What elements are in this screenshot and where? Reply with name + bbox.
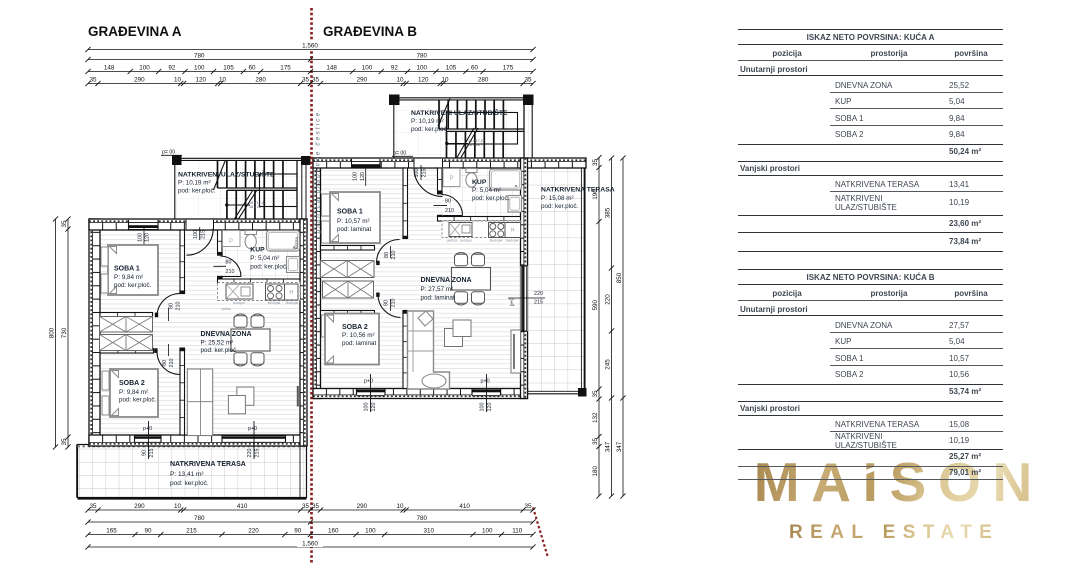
svg-text:100: 100: [480, 403, 486, 412]
svg-text:10: 10: [174, 503, 182, 510]
svg-text:100: 100: [139, 64, 150, 71]
svg-text:120: 120: [145, 233, 151, 242]
svg-text:780: 780: [194, 515, 205, 522]
svg-text:410: 410: [459, 503, 470, 510]
svg-text:štednjak: štednjak: [268, 301, 281, 305]
svg-text:245: 245: [605, 359, 612, 370]
svg-text:215: 215: [186, 527, 197, 534]
svg-text:190: 190: [592, 189, 599, 200]
svg-text:210: 210: [226, 269, 235, 275]
svg-text:p+0: p+0: [481, 379, 490, 385]
svg-text:110: 110: [512, 527, 523, 534]
svg-text:92: 92: [391, 64, 399, 71]
svg-text:105: 105: [446, 64, 457, 71]
svg-text:35: 35: [302, 76, 310, 83]
svg-text:pod: laminat: pod: laminat: [421, 295, 456, 302]
svg-text:35: 35: [312, 76, 320, 83]
svg-text:sudoper: sudoper: [460, 239, 473, 243]
svg-text:H: H: [511, 228, 515, 234]
svg-text:štednjak: štednjak: [490, 239, 503, 243]
svg-text:60: 60: [248, 64, 256, 71]
svg-text:780: 780: [416, 52, 427, 59]
svg-text:35: 35: [592, 390, 599, 398]
svg-text:35: 35: [61, 220, 68, 228]
svg-text:210: 210: [169, 359, 175, 368]
svg-text:215: 215: [149, 449, 155, 458]
svg-text:pod: ker.ploč.: pod: ker.ploč.: [178, 188, 216, 195]
svg-text:p+0: p+0: [248, 426, 257, 432]
svg-text:310: 310: [424, 527, 435, 534]
svg-text:35: 35: [89, 503, 97, 510]
svg-text:DNEVNA ZONA: DNEVNA ZONA: [421, 277, 472, 284]
svg-text:P: 10,19 m²: P: 10,19 m²: [411, 118, 444, 125]
svg-text:215: 215: [422, 169, 428, 178]
svg-text:H: H: [289, 290, 293, 296]
svg-text:NATKRIVENI ULAZ/STUBIŠTE: NATKRIVENI ULAZ/STUBIŠTE: [411, 108, 508, 117]
svg-text:730: 730: [61, 327, 68, 338]
svg-text:18 x 28: 18 x 28: [468, 143, 480, 147]
svg-text:P: 25,52 m²: P: 25,52 m²: [201, 340, 234, 347]
svg-text:347: 347: [616, 441, 623, 452]
svg-text:p= 00: p= 00: [393, 151, 406, 157]
svg-text:P: 10,56 m²: P: 10,56 m²: [342, 332, 375, 339]
svg-text:290: 290: [357, 503, 368, 510]
svg-text:148: 148: [104, 64, 115, 71]
svg-text:210: 210: [176, 302, 182, 311]
svg-text:35: 35: [312, 503, 320, 510]
svg-text:90: 90: [142, 450, 148, 456]
svg-text:80: 80: [445, 199, 451, 205]
svg-text:P: 13,41 m²: P: 13,41 m²: [170, 471, 204, 478]
svg-text:pod: ker.ploč: pod: ker.ploč: [411, 126, 447, 133]
svg-text:80: 80: [169, 303, 175, 309]
svg-text:100: 100: [362, 64, 373, 71]
svg-text:80: 80: [226, 260, 232, 266]
svg-text:pod: laminat: pod: laminat: [342, 340, 377, 347]
svg-text:210: 210: [445, 208, 454, 214]
svg-text:10: 10: [396, 503, 404, 510]
svg-text:P: 27,57 m²: P: 27,57 m²: [421, 286, 454, 293]
svg-text:347: 347: [605, 441, 612, 452]
svg-text:SOBA 2: SOBA 2: [119, 380, 145, 387]
svg-text:35: 35: [592, 438, 599, 446]
svg-text:100: 100: [416, 64, 427, 71]
svg-text:35: 35: [89, 76, 97, 83]
svg-text:210: 210: [391, 299, 397, 308]
svg-text:35: 35: [525, 503, 533, 510]
svg-text:132: 132: [592, 412, 599, 423]
svg-text:pod: ker.ploč.: pod: ker.ploč.: [250, 264, 288, 271]
svg-text:p+0: p+0: [143, 426, 152, 432]
svg-text:160: 160: [328, 527, 339, 534]
svg-text:P: 15,08 m²: P: 15,08 m²: [541, 195, 574, 202]
svg-text:P: P: [229, 239, 233, 245]
svg-text:p+0: p+0: [364, 379, 373, 385]
svg-text:P: 5,04 m²: P: 5,04 m²: [250, 255, 279, 262]
svg-text:p= 00: p= 00: [162, 150, 175, 156]
svg-text:175: 175: [280, 64, 291, 71]
svg-text:10: 10: [219, 76, 227, 83]
svg-text:120: 120: [487, 403, 493, 412]
svg-text:290: 290: [357, 76, 368, 83]
svg-text:1,560: 1,560: [302, 540, 318, 547]
svg-text:290: 290: [134, 503, 145, 510]
svg-text:100: 100: [364, 403, 370, 412]
svg-text:pod: ker.ploč.: pod: ker.ploč.: [472, 195, 510, 202]
svg-text:120: 120: [360, 172, 366, 181]
svg-text:P: 9,84 m²: P: 9,84 m²: [119, 389, 148, 396]
svg-text:pod: laminat: pod: laminat: [337, 226, 372, 233]
svg-text:385: 385: [605, 207, 612, 218]
svg-text:100: 100: [353, 172, 359, 181]
svg-text:P: P: [449, 176, 453, 182]
svg-text:10: 10: [174, 76, 182, 83]
svg-text:P: 10,57 m²: P: 10,57 m²: [337, 218, 370, 225]
svg-text:sudoper: sudoper: [233, 301, 246, 305]
svg-text:215: 215: [534, 300, 543, 306]
svg-text:35: 35: [592, 159, 599, 167]
svg-text:120: 120: [371, 403, 377, 412]
svg-text:215: 215: [201, 230, 207, 239]
svg-text:220: 220: [605, 294, 612, 305]
svg-text:80: 80: [384, 300, 390, 306]
svg-text:KUP: KUP: [250, 247, 265, 254]
svg-text:SOBA 1: SOBA 1: [114, 266, 140, 273]
svg-text:35: 35: [525, 76, 533, 83]
svg-text:p+0: p+0: [510, 298, 516, 307]
svg-text:175: 175: [503, 64, 514, 71]
svg-text:800: 800: [49, 327, 56, 338]
svg-text:hladnjak: hladnjak: [506, 239, 519, 243]
svg-text:pod: ker.ploč.: pod: ker.ploč.: [541, 203, 579, 210]
svg-text:90: 90: [144, 527, 152, 534]
svg-text:220: 220: [247, 449, 253, 458]
svg-text:hladnjak: hladnjak: [286, 301, 299, 305]
svg-text:GRAĐEVINA B: GRAĐEVINA B: [323, 24, 417, 39]
svg-text:80: 80: [162, 360, 168, 366]
svg-text:1,560: 1,560: [302, 43, 318, 50]
svg-text:pod: ker.ploč.: pod: ker.ploč.: [170, 480, 209, 487]
svg-text:10: 10: [396, 76, 404, 83]
svg-text:100: 100: [193, 230, 199, 239]
svg-text:10: 10: [441, 76, 449, 83]
svg-text:120: 120: [195, 76, 206, 83]
svg-text:perilica: perilica: [447, 239, 458, 243]
svg-text:P: 9,84 m²: P: 9,84 m²: [114, 274, 143, 281]
svg-text:SOBA 1: SOBA 1: [337, 209, 363, 216]
svg-text:60: 60: [471, 64, 479, 71]
svg-text:90: 90: [294, 527, 302, 534]
svg-text:100: 100: [138, 233, 144, 242]
svg-text:35: 35: [302, 503, 310, 510]
svg-text:pod: ker.ploč.: pod: ker.ploč.: [119, 397, 157, 404]
svg-text:pod: ker.ploč.: pod: ker.ploč.: [114, 282, 152, 289]
svg-text:100: 100: [194, 64, 205, 71]
svg-text:GRAĐEVINA A: GRAĐEVINA A: [88, 24, 182, 39]
svg-text:100: 100: [482, 527, 493, 534]
svg-text:SOBA 2: SOBA 2: [342, 324, 368, 331]
svg-text:pod: ker.ploč: pod: ker.ploč: [201, 347, 237, 354]
svg-text:410: 410: [237, 503, 248, 510]
svg-text:220: 220: [248, 527, 259, 534]
svg-text:180: 180: [592, 466, 599, 477]
svg-text:215: 215: [255, 449, 261, 458]
svg-text:35: 35: [61, 438, 68, 446]
svg-text:220: 220: [534, 291, 543, 297]
svg-text:280: 280: [478, 76, 489, 83]
svg-text:280: 280: [255, 76, 266, 83]
svg-text:NATKRIVENA TERASA: NATKRIVENA TERASA: [170, 461, 246, 468]
svg-text:P: 10,19 m²: P: 10,19 m²: [178, 180, 211, 187]
svg-text:780: 780: [194, 52, 205, 59]
svg-text:850: 850: [616, 272, 623, 283]
svg-text:92: 92: [168, 64, 176, 71]
svg-text:105: 105: [223, 64, 234, 71]
svg-text:210: 210: [391, 251, 397, 260]
svg-text:NATKRIVENI ULAZ/STUBIŠTE: NATKRIVENI ULAZ/STUBIŠTE: [178, 170, 275, 179]
svg-text:120: 120: [418, 76, 429, 83]
svg-text:80: 80: [384, 252, 390, 258]
svg-text:100: 100: [365, 527, 376, 534]
svg-text:18 x 28: 18 x 28: [249, 205, 261, 209]
svg-text:klizna: klizna: [294, 237, 299, 249]
svg-text:granica građevne čestice: granica građevne čestice: [315, 111, 322, 234]
svg-text:100: 100: [414, 169, 420, 178]
svg-text:780: 780: [416, 515, 427, 522]
svg-text:P: 5,04 m²: P: 5,04 m²: [472, 187, 501, 194]
svg-text:polica: polica: [222, 307, 231, 311]
svg-text:DNEVNA ZONA: DNEVNA ZONA: [201, 331, 252, 338]
svg-text:590: 590: [592, 300, 599, 311]
svg-text:165: 165: [106, 527, 117, 534]
svg-text:290: 290: [134, 76, 145, 83]
svg-text:KUP: KUP: [472, 179, 487, 186]
svg-text:NATKRIVENA TERASA: NATKRIVENA TERASA: [541, 187, 615, 194]
svg-text:148: 148: [326, 64, 337, 71]
